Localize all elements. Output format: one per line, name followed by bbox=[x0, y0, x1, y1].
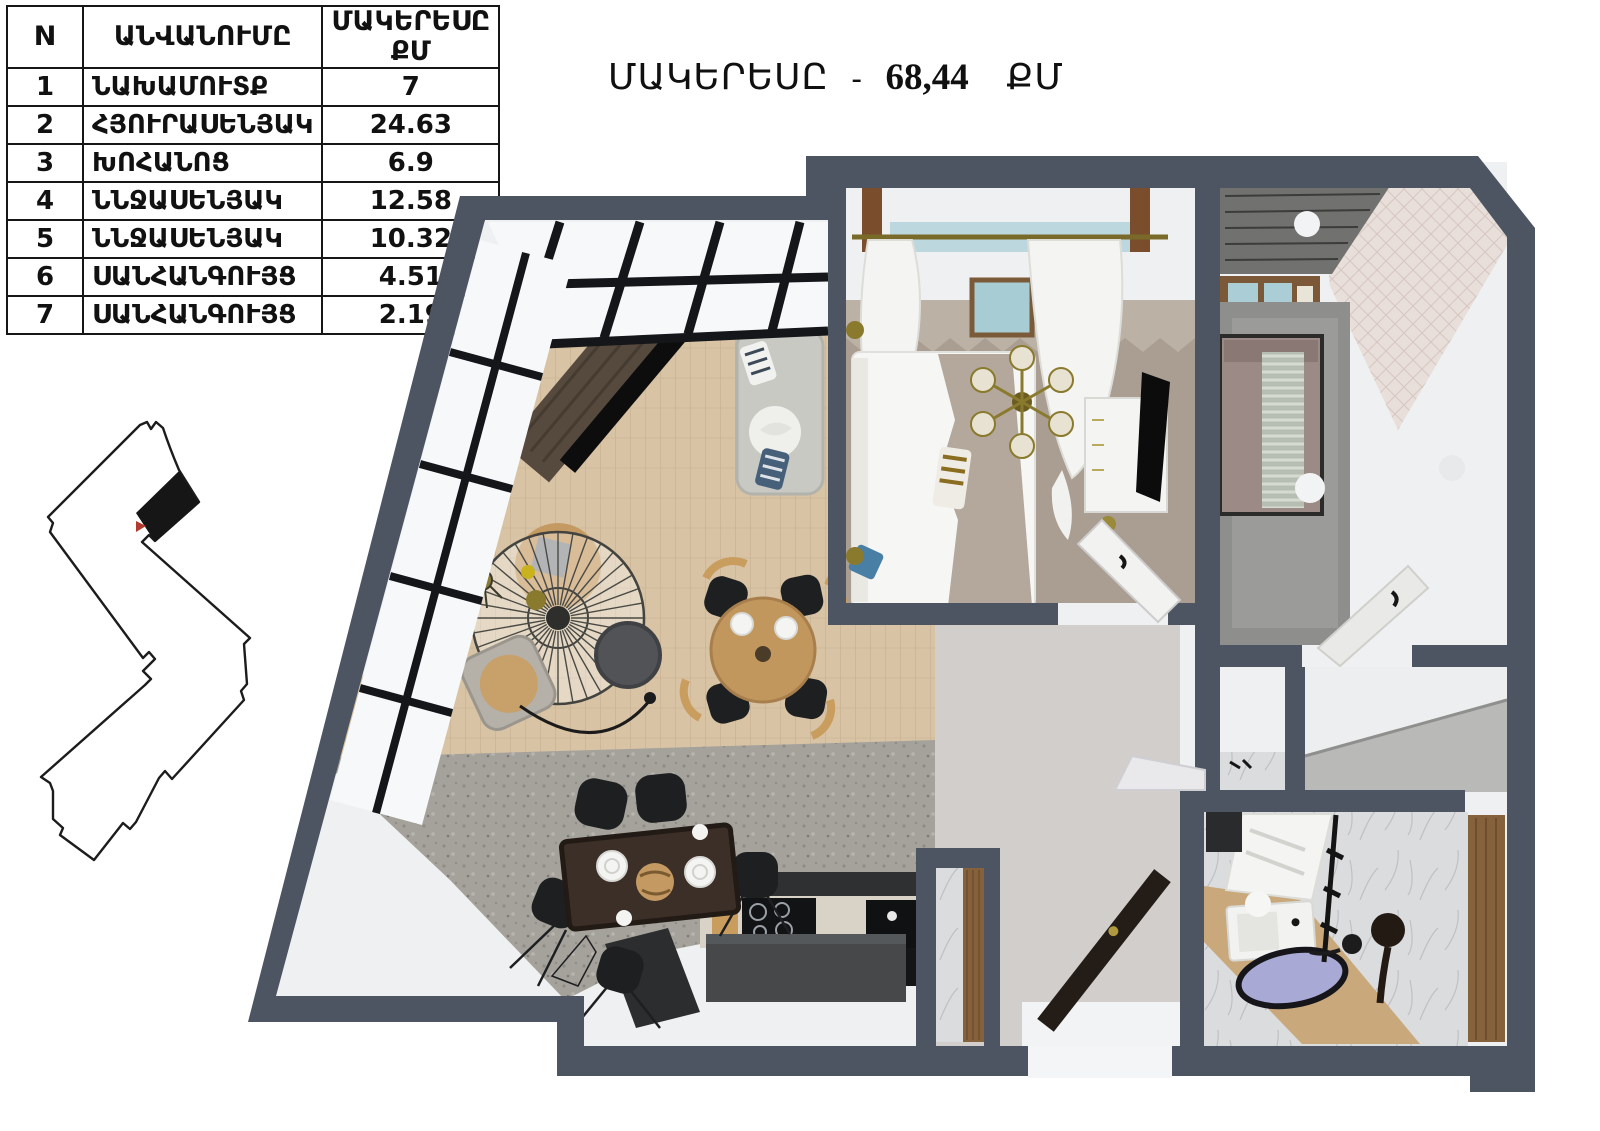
room-bedroom-2 bbox=[1220, 162, 1510, 666]
appliance-dot bbox=[887, 911, 897, 921]
wall-sconce-2 bbox=[846, 547, 864, 565]
table-center bbox=[755, 646, 771, 662]
closet-left bbox=[1220, 667, 1285, 792]
wall-sconce-1 bbox=[846, 321, 864, 339]
lamp-head bbox=[644, 692, 656, 704]
wall-bed2-bottom-left bbox=[1195, 645, 1302, 667]
wall-wc-top bbox=[916, 848, 1000, 868]
plate-1 bbox=[597, 851, 627, 881]
ceiling-light-1 bbox=[1294, 211, 1320, 237]
apartment-floor-plan bbox=[0, 0, 1600, 1131]
wall-closets bbox=[1285, 667, 1305, 792]
gold-ornament bbox=[526, 590, 546, 610]
wall-bed1-bottom-left bbox=[828, 603, 1058, 625]
room-bedroom-1 bbox=[846, 186, 1195, 608]
ceiling-light-3 bbox=[1439, 455, 1465, 481]
wall-bed1-bed2 bbox=[1195, 156, 1220, 792]
mug-white bbox=[692, 824, 708, 840]
bath-ball bbox=[1245, 891, 1271, 917]
wall-bathroom-top bbox=[1180, 790, 1465, 812]
plate-2 bbox=[685, 857, 715, 887]
closet-right bbox=[1305, 667, 1507, 792]
entry-gap bbox=[1028, 1046, 1172, 1078]
island-top-edge bbox=[706, 934, 906, 944]
wall-wc-left bbox=[916, 848, 936, 1046]
mug-white-2 bbox=[616, 910, 632, 926]
wall-bathroom-left bbox=[1180, 812, 1204, 1046]
room-bathroom-1 bbox=[1204, 812, 1468, 1046]
floor-plan-page: N ԱՆՎԱՆՈՒՄԸ ՄԱԿԵՐԵՍԸ ՔՄ 1 ՆԱԽԱՄՈՒՏՔ 7 2 … bbox=[0, 0, 1600, 1131]
bathroom-wood-door bbox=[1468, 815, 1505, 1042]
vanity-basin bbox=[1237, 911, 1280, 952]
wall-bed2-bottom-right bbox=[1412, 645, 1507, 667]
plate-small-1 bbox=[731, 613, 753, 635]
sofa bbox=[737, 330, 823, 494]
wall-wc-right bbox=[984, 848, 1000, 1046]
wall-foot bbox=[1470, 1076, 1535, 1092]
coffee-table bbox=[596, 623, 660, 687]
kitchen-island bbox=[706, 934, 906, 1002]
bedroom1-window-deep bbox=[972, 280, 1032, 335]
plate-small-2 bbox=[775, 617, 797, 639]
ceiling-light-2 bbox=[1295, 473, 1325, 503]
flower-yellow bbox=[521, 565, 535, 579]
bed-post-right bbox=[1130, 186, 1150, 252]
bath-dark-box bbox=[1206, 812, 1242, 852]
wall-living-bed1 bbox=[828, 156, 846, 625]
